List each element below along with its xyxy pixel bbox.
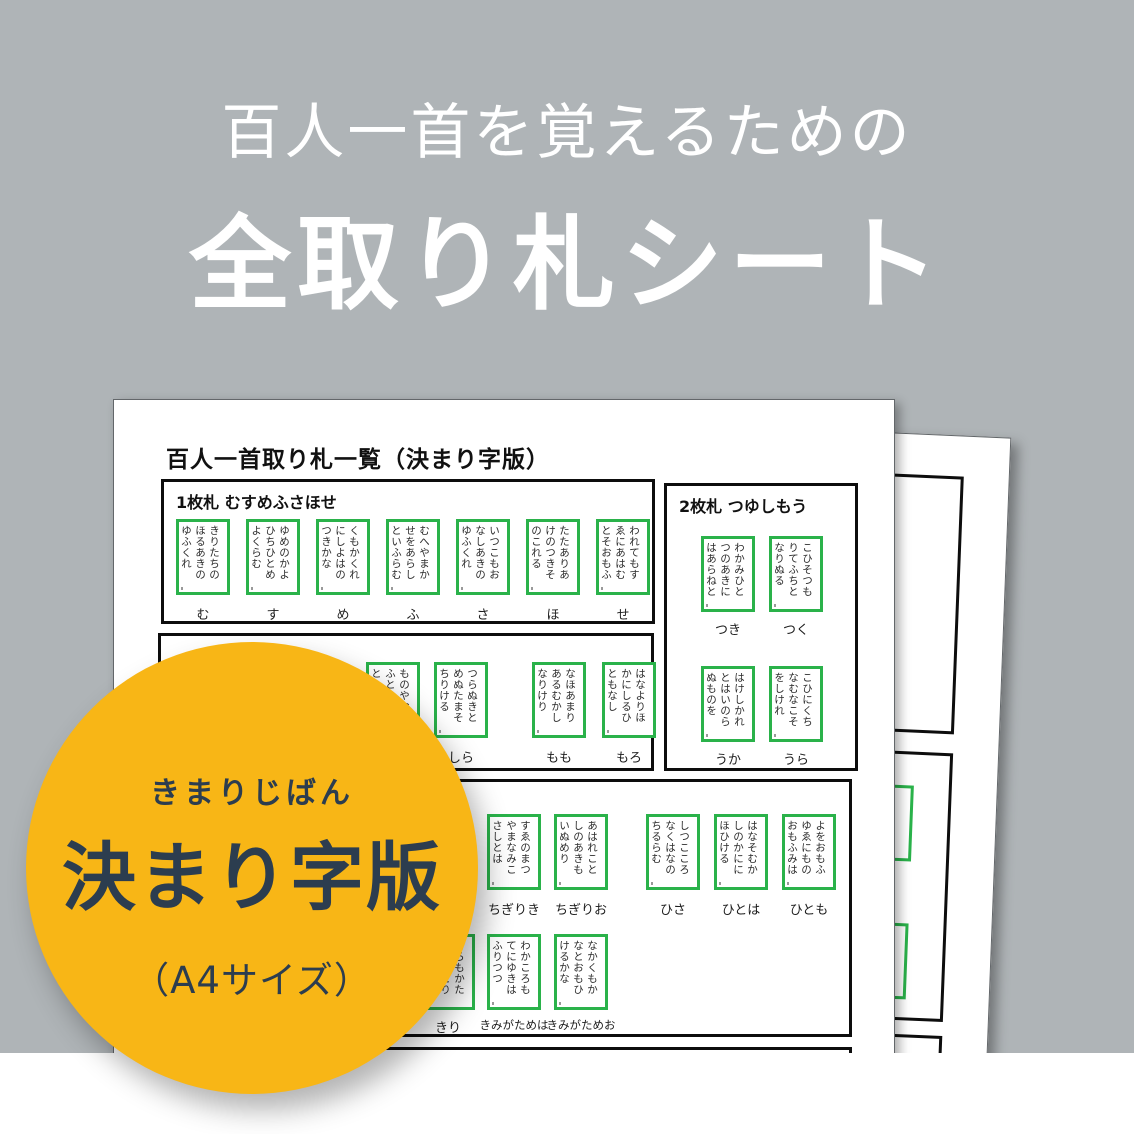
kimariji-label: さ: [476, 604, 489, 623]
card-verse: なかくもか なとおもひ けるかな: [557, 937, 601, 1007]
card-verse: むへやまか せをあらし といふらむ: [389, 522, 433, 592]
torifuda-card: はなよりほ かにしるひ ともなし: [602, 662, 656, 738]
hero-subtitle: 百人一首を覚えるための: [0, 84, 1134, 171]
badge-size-note: （A4サイズ）: [26, 950, 478, 1004]
torifuda-card: つらぬきと めぬたまそ ちりける: [434, 662, 488, 738]
torifuda-card: なかくもか なとおもひ けるかな: [554, 934, 608, 1010]
torifuda-card: すゑのまつ やまなみこ さしとは: [487, 814, 541, 890]
kimariji-label: きみがためは: [480, 1017, 549, 1033]
kimariji-label: す: [266, 604, 279, 623]
kimariji-label: うら: [783, 749, 809, 768]
kimariji-label: うか: [715, 749, 741, 768]
kimariji-label: ちぎりき: [488, 899, 540, 918]
kimariji-label: つく: [783, 619, 809, 638]
section-header-2mai: 2枚札 つゆしもう: [679, 493, 807, 517]
torifuda-card: きりたちの ほるあきの ゆふくれ: [176, 519, 230, 595]
torifuda-card: こひそつも りてふちと なりぬる: [769, 536, 823, 612]
section-header-1mai: 1枚札 むすめふさほせ: [176, 489, 337, 513]
torifuda-card: あはれこと しのあきも いぬめり: [554, 814, 608, 890]
kimariji-label: ひさ: [660, 899, 686, 918]
card-verse: くもかくれ にしよはの つきかな: [319, 522, 363, 592]
card-verse: きりたちの ほるあきの ゆふくれ: [179, 522, 223, 592]
kimariji-label: もも: [546, 747, 572, 766]
torifuda-card: はけしかれ とはいのら ぬものを: [701, 666, 755, 742]
card-verse: いつこもお なしあきの ゆふくれ: [459, 522, 503, 592]
torifuda-card: わかころも てにゆきは ふりつつ: [487, 934, 541, 1010]
kimariji-label: つき: [715, 619, 741, 638]
torifuda-card: たたありあ けのつきそ のこれる: [526, 519, 580, 595]
kimariji-label: せ: [616, 604, 629, 623]
kimariji-label: ひとは: [722, 899, 761, 918]
torifuda-card: よをおもふ ゆゑにもの おもふみは: [782, 814, 836, 890]
torifuda-card: ゆめのかよ ひちひとめ よくらむ: [246, 519, 300, 595]
badge-circle: きまりじばん 決まり字版 （A4サイズ）: [26, 642, 478, 1094]
kimariji-label: め: [336, 604, 349, 623]
card-verse: はなよりほ かにしるひ ともなし: [605, 665, 649, 735]
card-verse: わかころも てにゆきは ふりつつ: [490, 937, 534, 1007]
kimariji-label: ちぎりお: [555, 899, 607, 918]
card-verse: たたありあ けのつきそ のこれる: [529, 522, 573, 592]
promo-image: 百人一首を覚えるための 全取り札シート なこそなか れてなほき こえけれたきこひ…: [0, 0, 1134, 1134]
section-box-1mai: 1枚札 むすめふさほせきりたちの ほるあきの ゆふくれむゆめのかよ ひちひとめ …: [161, 479, 655, 624]
card-verse: わかみひと つのあきに はあらねと: [704, 539, 748, 609]
kimariji-label: きり: [435, 1017, 461, 1036]
hero-title: 全取り札シート: [0, 183, 1134, 330]
kimariji-label: きみがためお: [547, 1017, 616, 1033]
kimariji-label: ふ: [406, 604, 419, 623]
card-verse: はなそむか しのかにに ほひける: [717, 817, 761, 887]
torifuda-card: くもかくれ にしよはの つきかな: [316, 519, 370, 595]
torifuda-card: こひにくち なむなこそ をしけれ: [769, 666, 823, 742]
kimariji-label: む: [196, 604, 209, 623]
kimariji-label: もろ: [616, 747, 642, 766]
torifuda-card: いつこもお なしあきの ゆふくれ: [456, 519, 510, 595]
torifuda-card: はなそむか しのかにに ほひける: [714, 814, 768, 890]
torifuda-card: われてもす ゑにあはむ とそおもふ: [596, 519, 650, 595]
card-verse: つらぬきと めぬたまそ ちりける: [437, 665, 481, 735]
card-verse: はけしかれ とはいのら ぬものを: [704, 669, 748, 739]
card-verse: すゑのまつ やまなみこ さしとは: [490, 817, 534, 887]
kimariji-label: ほ: [546, 604, 559, 623]
card-verse: あはれこと しのあきも いぬめり: [557, 817, 601, 887]
kimariji-label: ひとも: [790, 899, 829, 918]
section-box-2mai: 2枚札 つゆしもうわかみひと つのあきに はあらねとつきこひそつも りてふちと …: [664, 483, 858, 771]
torifuda-card: しつこころ なくはなの ちるらむ: [646, 814, 700, 890]
card-verse: しつこころ なくはなの ちるらむ: [649, 817, 693, 887]
torifuda-card: むへやまか せをあらし といふらむ: [386, 519, 440, 595]
card-verse: なほあまり あるむかし なりけり: [535, 665, 579, 735]
card-verse: よをおもふ ゆゑにもの おもふみは: [785, 817, 829, 887]
sheet-title: 百人一首取り札一覧（決まり字版）: [166, 440, 550, 474]
torifuda-card: なほあまり あるむかし なりけり: [532, 662, 586, 738]
card-verse: こひにくち なむなこそ をしけれ: [772, 669, 816, 739]
card-verse: こひそつも りてふちと なりぬる: [772, 539, 816, 609]
badge-furigana: きまりじばん: [26, 768, 478, 812]
card-verse: われてもす ゑにあはむ とそおもふ: [599, 522, 643, 592]
badge-label: 決まり字版: [26, 818, 478, 925]
torifuda-card: わかみひと つのあきに はあらねと: [701, 536, 755, 612]
card-verse: ゆめのかよ ひちひとめ よくらむ: [249, 522, 293, 592]
